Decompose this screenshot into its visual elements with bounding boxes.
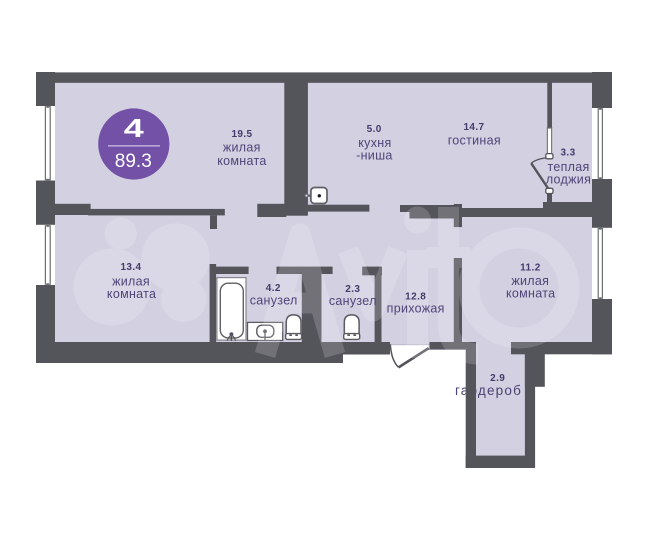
svg-text:2.9: 2.9 — [490, 373, 505, 384]
svg-text:11.2: 11.2 — [520, 262, 541, 273]
svg-text:-ниша: -ниша — [356, 148, 393, 162]
svg-text:19.5: 19.5 — [231, 129, 252, 140]
svg-text:89.3: 89.3 — [115, 151, 152, 172]
svg-text:санузел: санузел — [329, 294, 377, 308]
svg-text:комната: комната — [506, 286, 555, 300]
svg-text:13.4: 13.4 — [120, 262, 141, 273]
svg-text:комната: комната — [107, 287, 156, 301]
svg-text:4: 4 — [124, 113, 145, 143]
svg-text:гардероб: гардероб — [455, 383, 522, 398]
svg-text:5.0: 5.0 — [367, 124, 382, 135]
svg-text:жилая: жилая — [223, 140, 261, 154]
svg-text:гостиная: гостиная — [448, 133, 501, 147]
svg-text:4.2: 4.2 — [266, 283, 281, 294]
svg-text:14.7: 14.7 — [463, 122, 484, 133]
svg-text:санузел: санузел — [250, 294, 298, 308]
svg-text:лоджия: лоджия — [546, 172, 591, 186]
svg-text:3.3: 3.3 — [560, 148, 575, 159]
svg-text:прихожая: прихожая — [387, 301, 445, 315]
svg-text:комната: комната — [217, 154, 266, 168]
